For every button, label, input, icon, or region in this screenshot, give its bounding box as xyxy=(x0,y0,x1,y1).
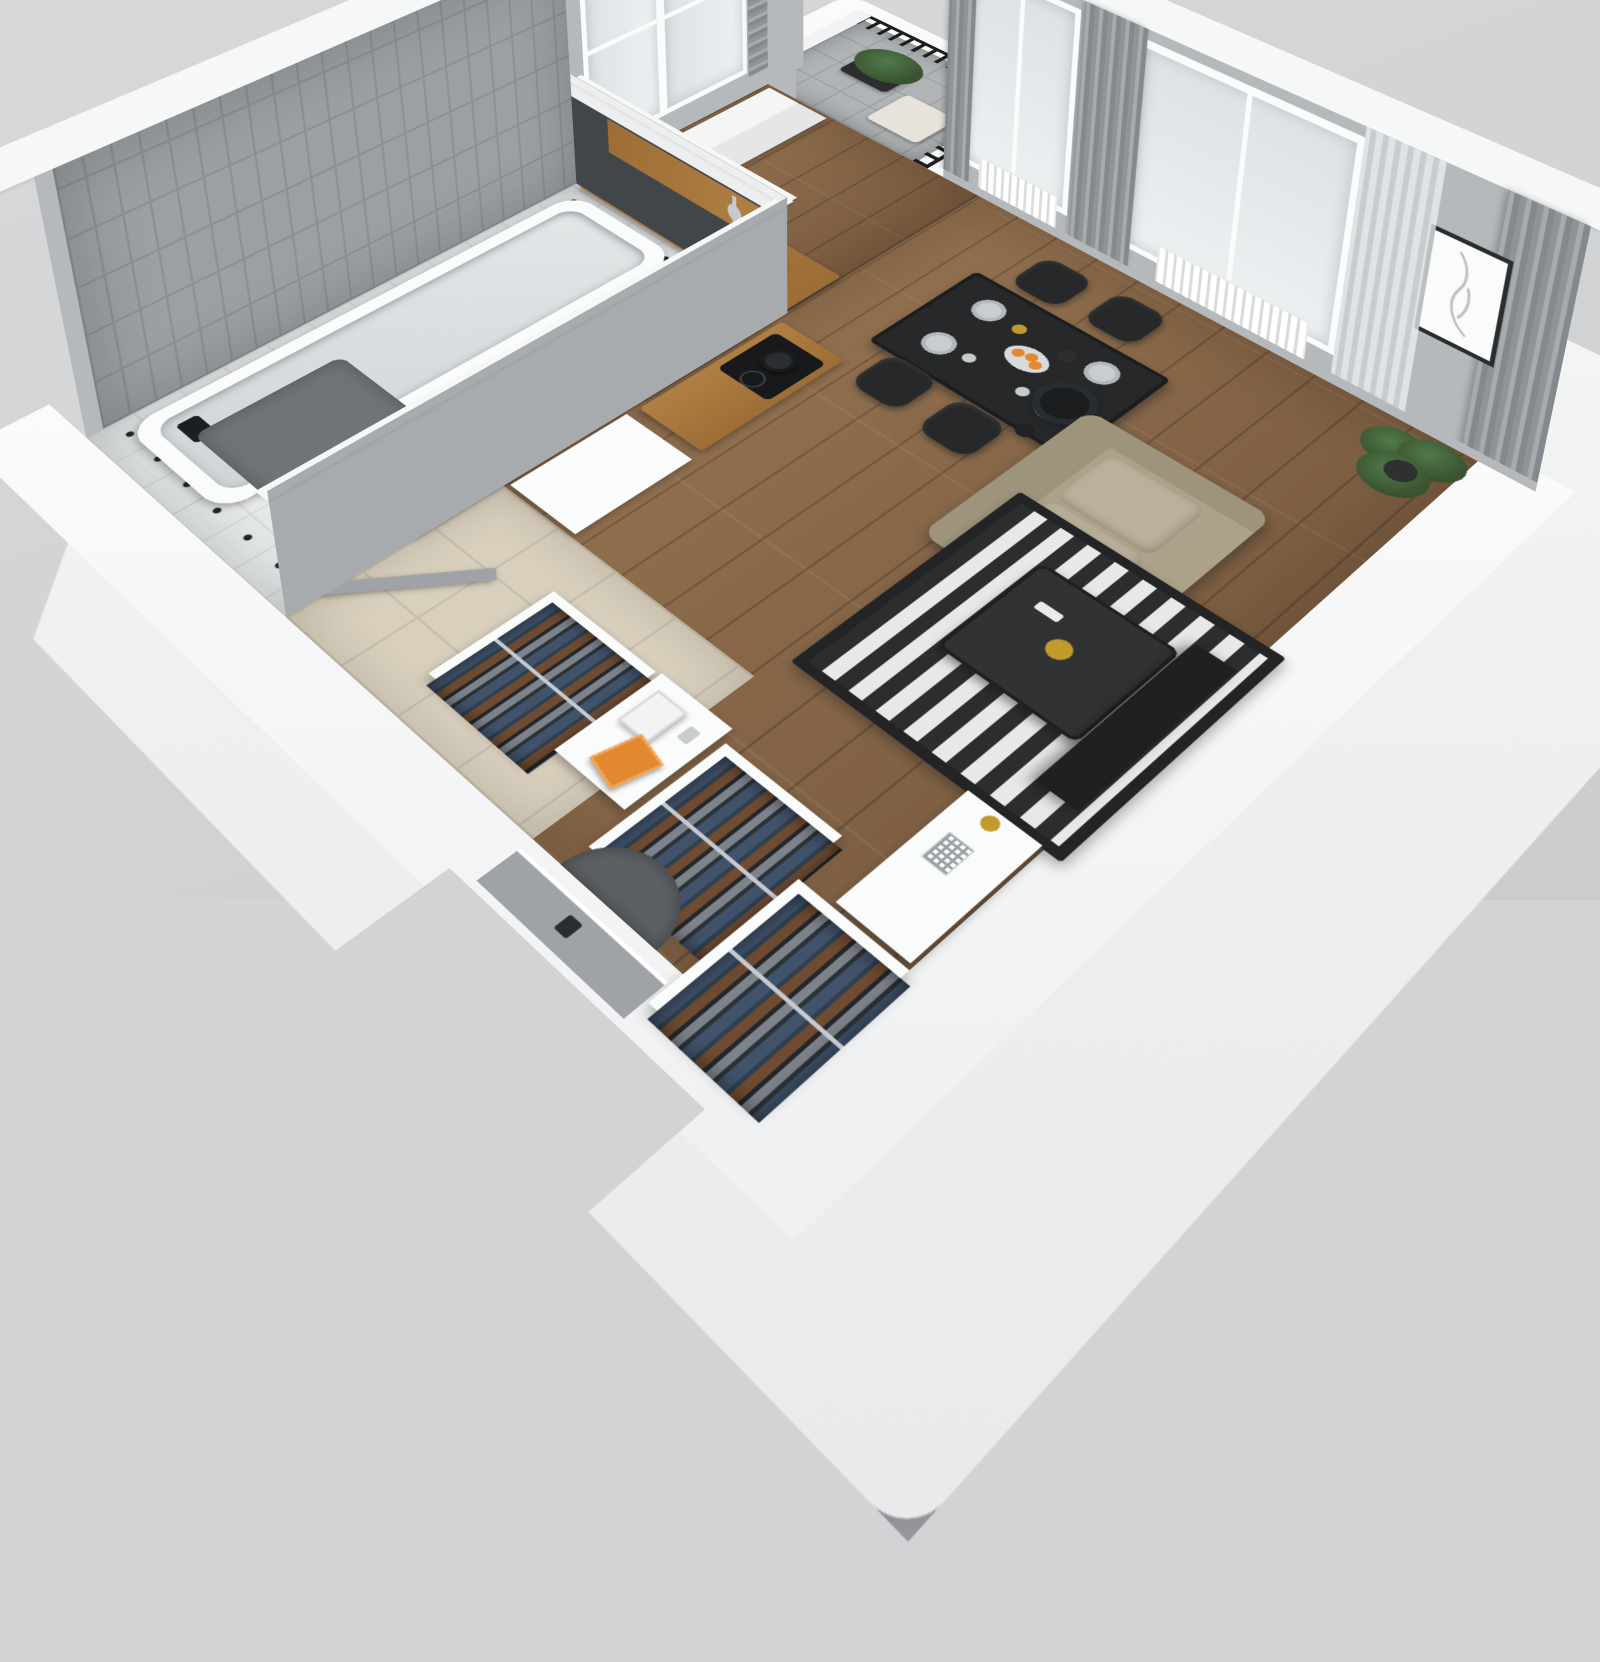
door-label-icon xyxy=(553,914,583,939)
window-mullion xyxy=(1225,91,1253,295)
gold-candle-icon xyxy=(976,812,1004,835)
apartment-3d-floorplan-render xyxy=(0,0,1600,900)
apartment-scene xyxy=(86,84,1478,1074)
kitchen-curtain xyxy=(747,0,768,77)
kitchen-window-1 xyxy=(656,0,747,116)
plate xyxy=(964,296,1013,326)
gold-carafe-icon xyxy=(1009,323,1031,336)
window-mullion xyxy=(1011,0,1026,184)
qr-label-icon xyxy=(921,831,976,876)
remote-icon xyxy=(1033,601,1064,623)
window-mullion xyxy=(588,19,657,56)
axonometric-viewport xyxy=(0,0,1600,900)
orange-magazine-icon xyxy=(589,734,664,790)
window-mullion xyxy=(664,0,741,19)
clothes-rail-icon xyxy=(729,948,844,1049)
line-art-sketch-icon xyxy=(1419,230,1508,361)
books-icon xyxy=(618,690,688,743)
